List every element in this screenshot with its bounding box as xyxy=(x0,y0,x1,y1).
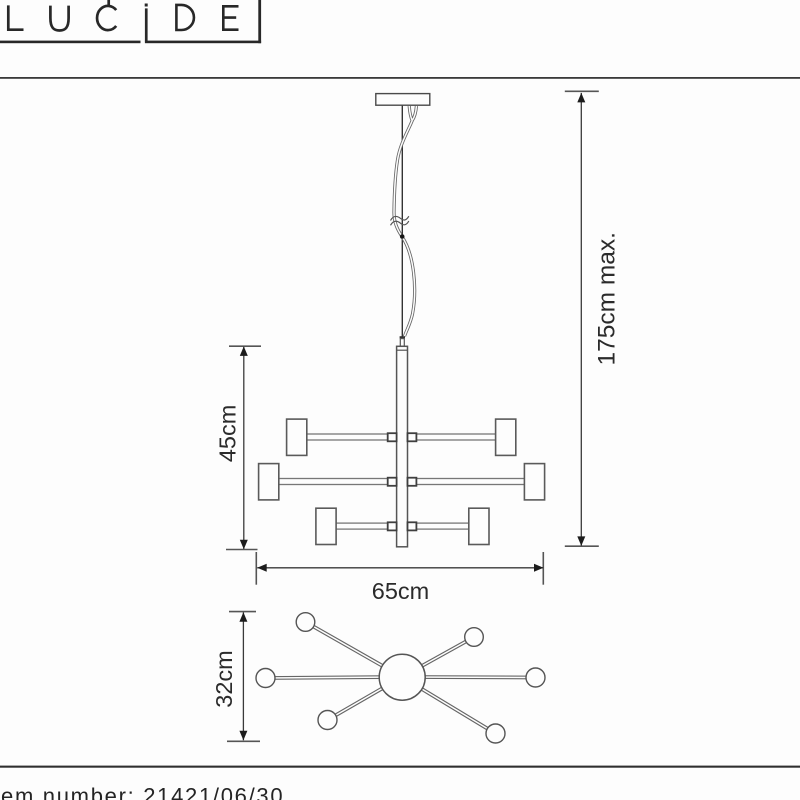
svg-text:45cm: 45cm xyxy=(215,405,241,462)
svg-text:175cm max.: 175cm max. xyxy=(594,232,621,365)
svg-text:65cm: 65cm xyxy=(372,578,429,604)
svg-text:Item number: 21421/06/30: Item number: 21421/06/30 xyxy=(0,784,284,800)
svg-text:32cm: 32cm xyxy=(211,650,237,707)
